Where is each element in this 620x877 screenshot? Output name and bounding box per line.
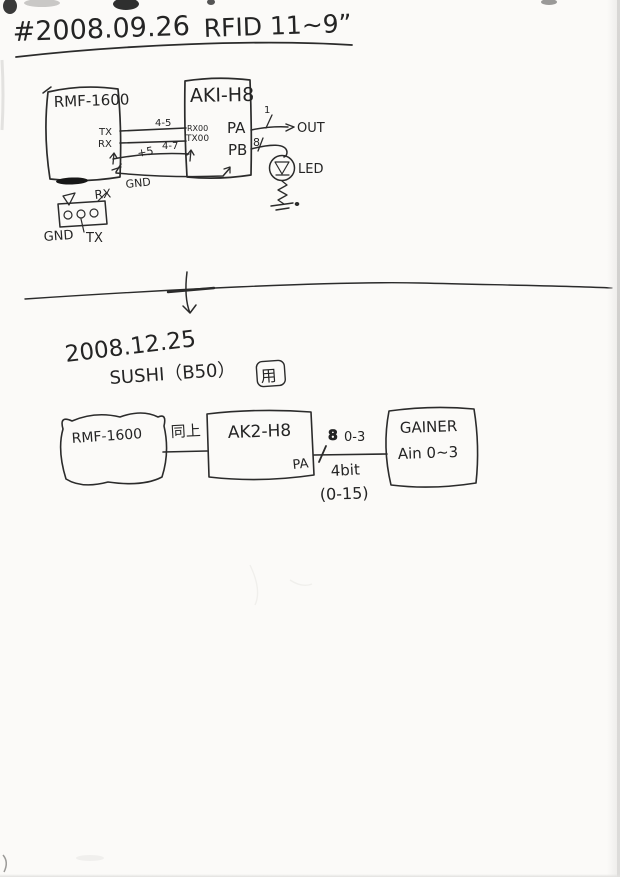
scan-artifact: [541, 0, 557, 5]
wire-rmf-to-ak2: [163, 451, 207, 452]
scan-artifact: [2, 60, 3, 130]
wire-gnd: [116, 164, 230, 177]
rmf1600-label: RMF-1600: [54, 90, 130, 111]
out-label: OUT: [297, 121, 325, 136]
page-title: RFID 11~9”: [203, 9, 352, 43]
bus-tick-out: [266, 115, 272, 128]
bus-mark: 8: [328, 428, 338, 444]
wire-tx-to-rx: [120, 128, 186, 131]
ground-dot: [295, 202, 300, 206]
header: #2008.09.26 RFID 11~9”: [12, 9, 352, 57]
paper-edge-shadow-soft: [607, 0, 617, 877]
connector-rx-label: RX: [94, 186, 112, 202]
section-divider: [25, 272, 612, 313]
ak2-pin-pa: PA: [292, 456, 309, 473]
led-diode-icon: [275, 162, 289, 175]
connector-tx-label: TX: [85, 231, 103, 246]
ink-smudge: [56, 177, 88, 185]
vcc-pin-arrow-right: [187, 150, 194, 161]
wire-ak2-to-gainer: [314, 454, 387, 455]
scan-artifact: [207, 0, 215, 5]
connector-pin-1: [64, 211, 72, 219]
aki-pin-tx0: TX00: [185, 134, 209, 144]
bus-range-label: 0-3: [344, 430, 365, 445]
scan-artifact: [76, 855, 104, 861]
connector-pin-2: [77, 210, 85, 218]
bus-values-label: (0-15): [319, 483, 368, 504]
scan-artifact: [113, 0, 139, 10]
aki-pin-pa: PA: [227, 119, 246, 137]
led-symbol-icon: [270, 156, 295, 181]
scan-artifact: [24, 0, 60, 7]
akih8-label: AKI-H8: [190, 84, 255, 107]
sketch-canvas: #2008.09.26 RFID 11~9” RMF-1600 TX RX AK…: [0, 0, 620, 877]
page-date: #2008.09.26: [12, 11, 190, 48]
out-bus-count: 1: [264, 105, 270, 116]
diagram-2: RMF-1600 同上 AK2-H8 PA 8 0-3 4bit (0-15) …: [61, 407, 478, 504]
bus-tick-gainer: [319, 446, 326, 462]
wire-label-vcc: +5: [136, 144, 154, 160]
aki-pin-rx0: RX00: [187, 124, 208, 133]
section2-header: 2008.12.25 SUSHI（B50） 用: [64, 326, 286, 389]
connector-pin-3: [90, 209, 98, 217]
down-arrow-icon: [183, 272, 196, 313]
scan-artifact: [3, 855, 6, 872]
wire-label-ditto: 同上: [170, 421, 201, 441]
aki-pin-pb: PB: [228, 141, 247, 159]
wire-pa-out: [251, 127, 288, 130]
led-label: LED: [298, 162, 323, 177]
gainer-ain-label: Ain 0~3: [398, 443, 459, 463]
bus-width-label: 4bit: [330, 460, 360, 480]
section2-stamp: 用: [260, 366, 277, 386]
section2-date: 2008.12.25: [64, 326, 198, 368]
section2-subtitle: SUSHI（B50）: [109, 359, 236, 389]
divider-wavy-line: [25, 283, 612, 299]
resistor-icon: [278, 181, 287, 204]
scanned-notebook-page: #2008.09.26 RFID 11~9” RMF-1600 TX RX AK…: [0, 0, 620, 877]
gnd-pin-arrows: [112, 167, 230, 173]
wire-label-4-7: 4-7: [162, 141, 178, 152]
gainer-label: GAINER: [400, 417, 458, 437]
ak2h8-label: AK2-H8: [227, 421, 291, 443]
rmf1600-label-2: RMF-1600: [71, 426, 142, 447]
connector-pinout: RX GND TX: [43, 186, 112, 246]
diagram-1: RMF-1600 TX RX AKI-H8 RX00 TX00 PA PB 4-…: [43, 78, 325, 246]
led-bus-count: 8: [253, 136, 260, 149]
ground-icon: [271, 203, 293, 210]
rmf1600-box-2: [61, 413, 167, 485]
rmf-pin-rx: RX: [98, 139, 112, 150]
connector-gnd-label: GND: [43, 228, 74, 245]
wire-label-4-5: 4-5: [155, 118, 171, 129]
scan-artifact: [250, 565, 312, 605]
scan-artifact: [3, 0, 17, 14]
rmf-pin-tx: TX: [98, 127, 112, 138]
wire-label-gnd: GND: [125, 175, 151, 191]
